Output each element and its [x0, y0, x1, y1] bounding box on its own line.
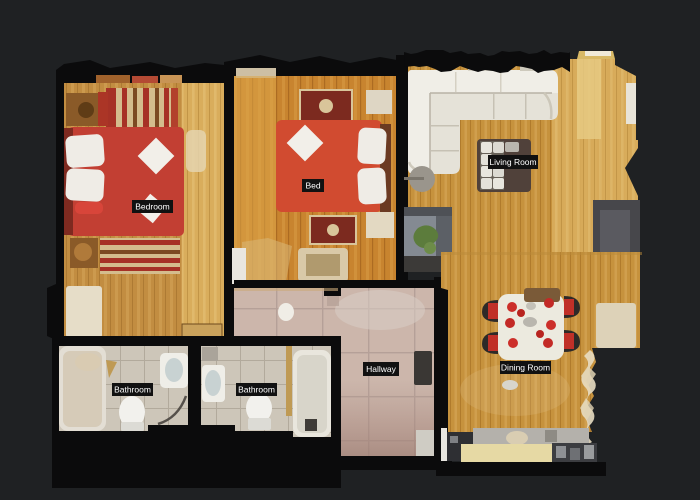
svg-text:Bathroom: Bathroom — [114, 385, 151, 395]
svg-text:Hallway: Hallway — [366, 364, 397, 374]
svg-text:Bed: Bed — [305, 181, 320, 191]
svg-text:Bathroom: Bathroom — [238, 385, 275, 395]
svg-text:Living Room: Living Room — [489, 157, 536, 167]
svg-text:Bedroom: Bedroom — [135, 202, 170, 212]
svg-text:Dining Room: Dining Room — [501, 363, 550, 373]
